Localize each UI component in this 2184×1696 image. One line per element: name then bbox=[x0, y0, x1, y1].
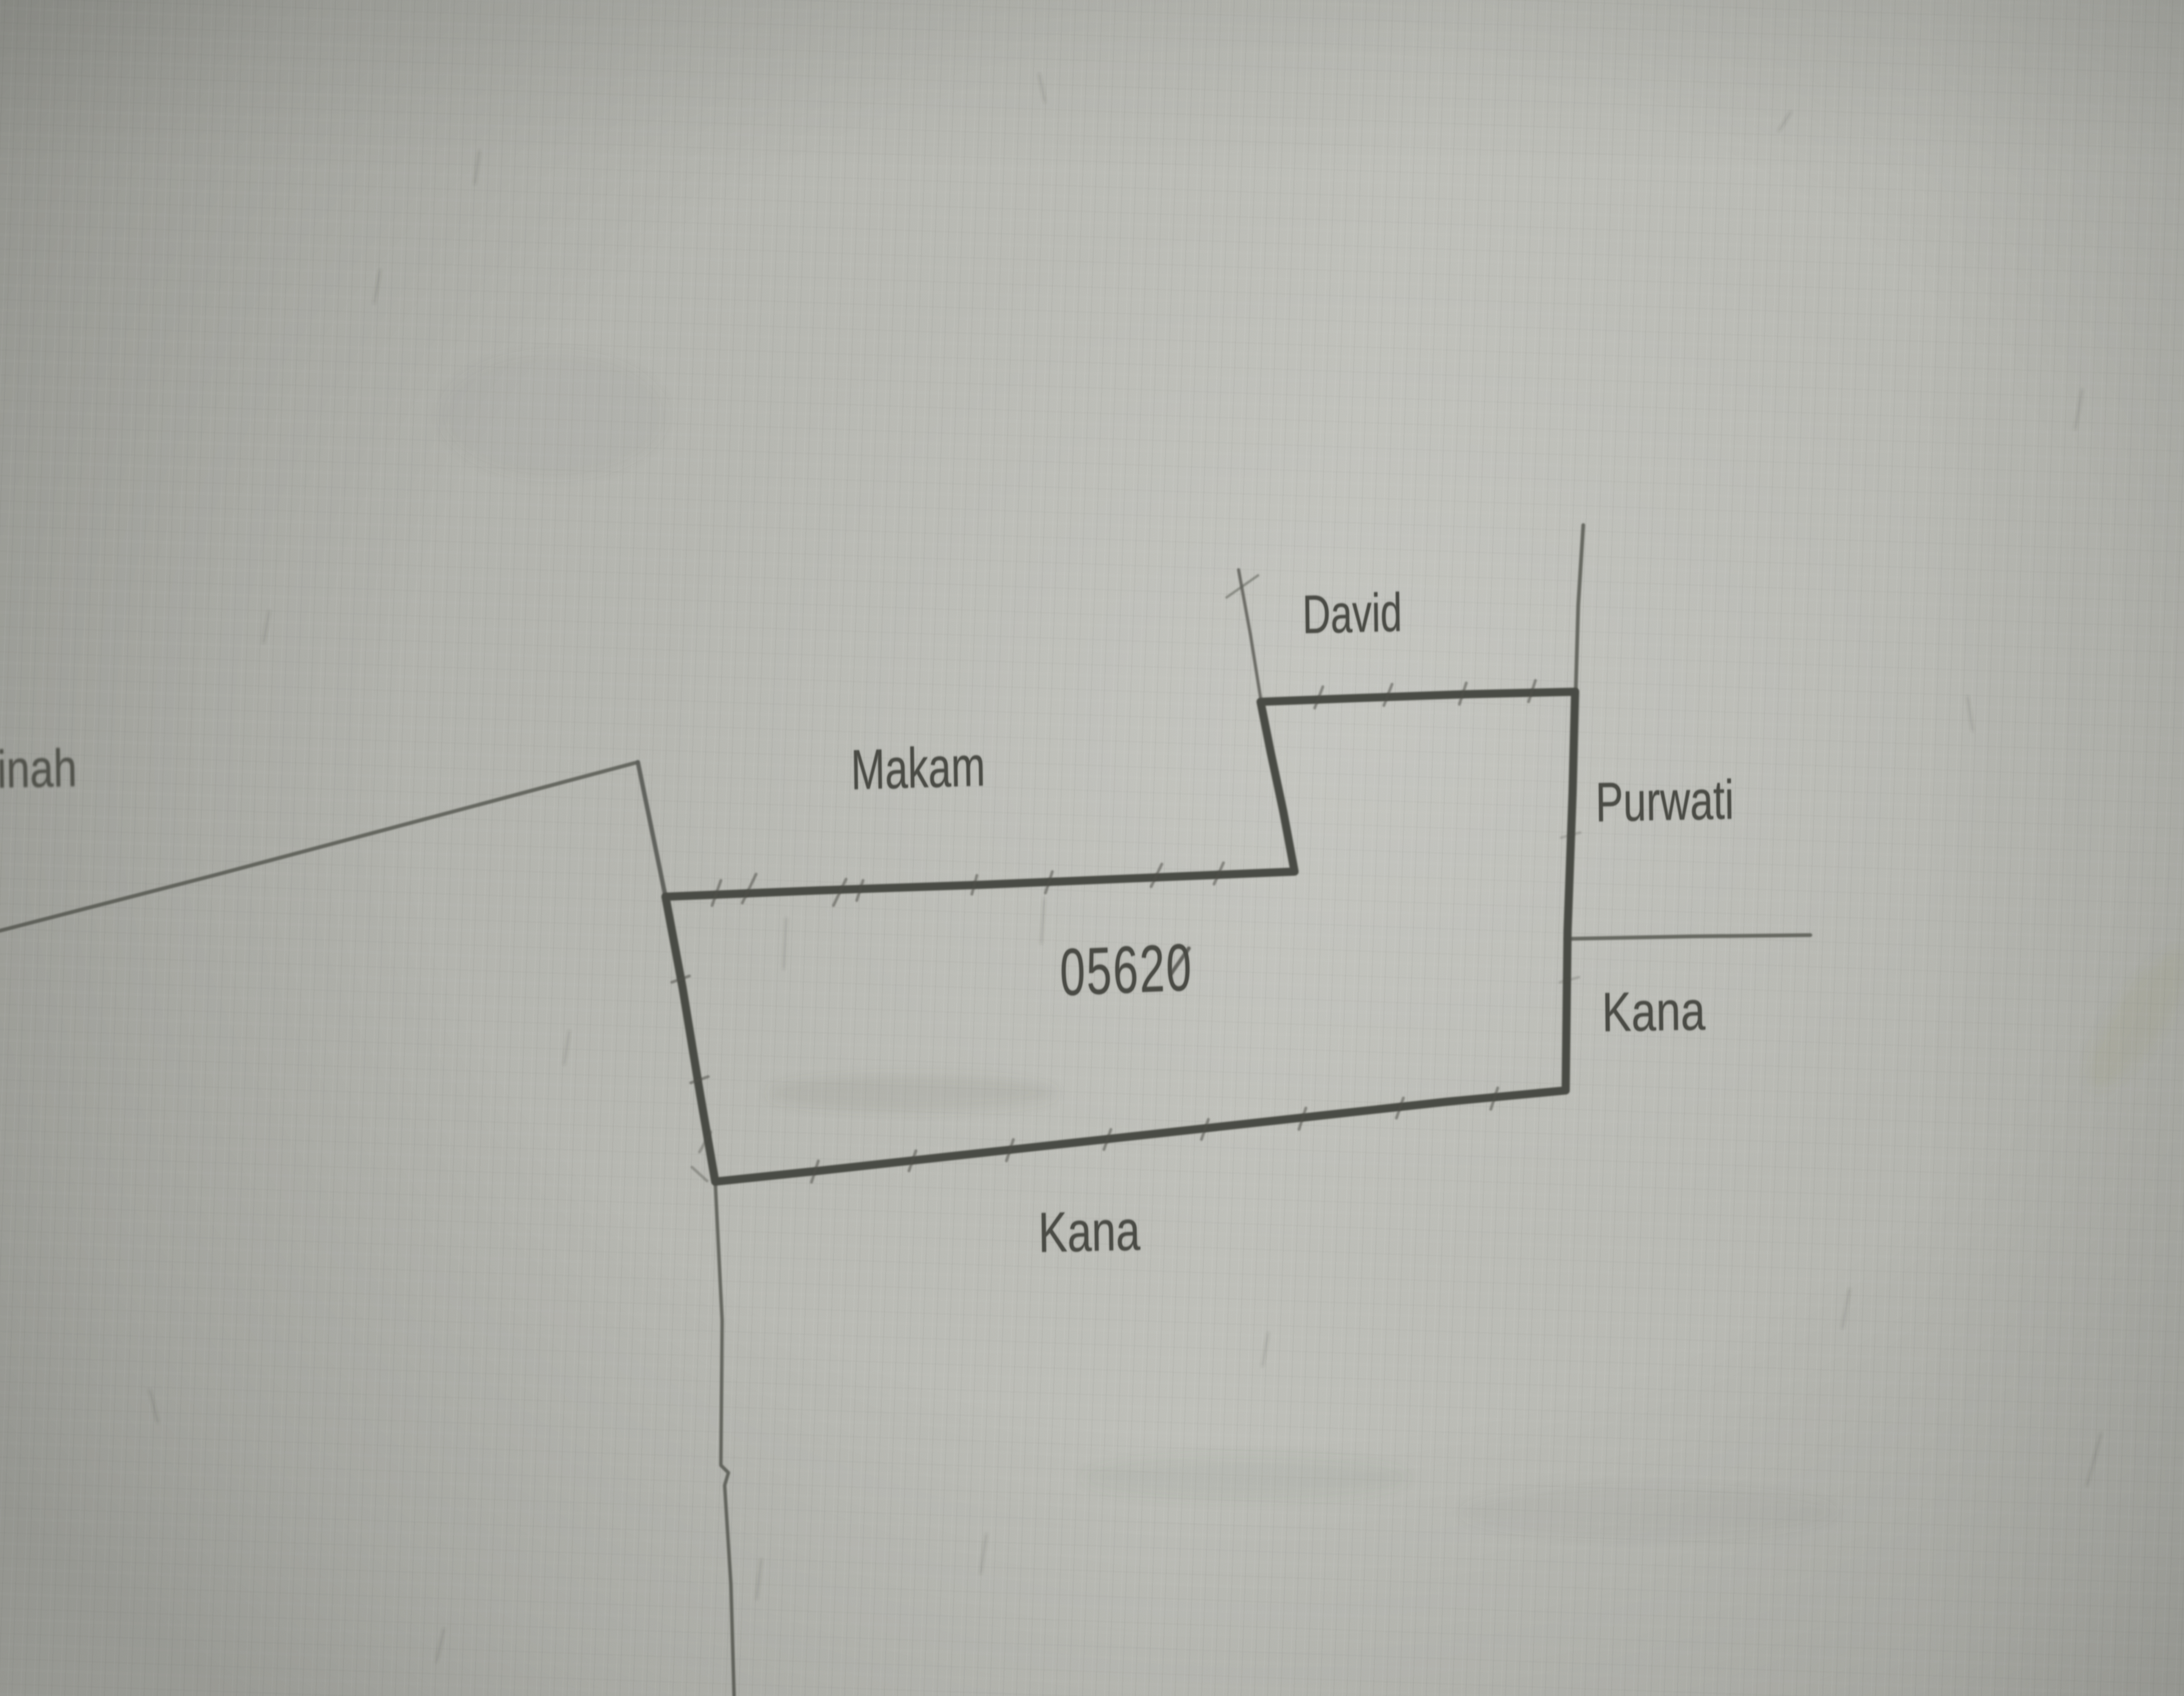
scanned-map: tinah Makam David Purwati Kana 05620 Kan… bbox=[0, 0, 2184, 1696]
photo-vignette bbox=[0, 0, 2184, 1696]
